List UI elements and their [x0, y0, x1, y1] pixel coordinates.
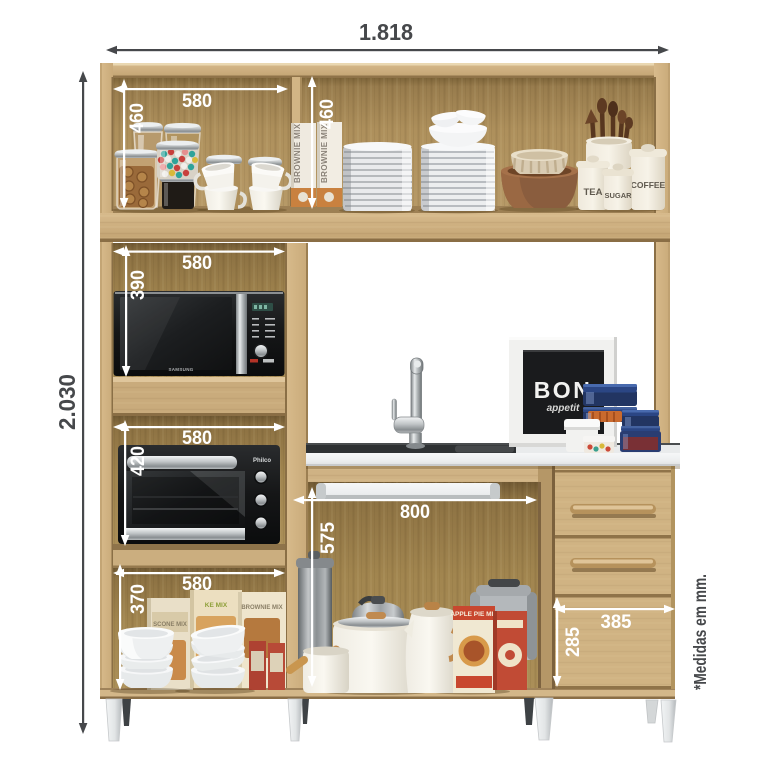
svg-text:390: 390 [128, 270, 149, 300]
svg-text:SAMSUNG: SAMSUNG [168, 367, 193, 372]
svg-text:APPLE PIE MIX: APPLE PIE MIX [450, 611, 498, 618]
svg-text:TEA: TEA [584, 187, 603, 198]
svg-text:460: 460 [127, 103, 148, 133]
svg-text:KE MIX: KE MIX [205, 602, 228, 609]
svg-text:800: 800 [400, 502, 430, 523]
svg-text:420: 420 [128, 446, 149, 476]
svg-text:COFFEE: COFFEE [631, 180, 666, 190]
svg-text:BROWNIE MIX: BROWNIE MIX [241, 605, 282, 611]
svg-text:2.030: 2.030 [54, 374, 80, 430]
svg-text:580: 580 [182, 253, 212, 274]
svg-text:*Medidas em mm.: *Medidas em mm. [690, 574, 710, 690]
svg-text:580: 580 [182, 428, 212, 449]
svg-text:575: 575 [318, 522, 339, 554]
svg-text:SCONE MIX: SCONE MIX [153, 622, 187, 628]
svg-text:appetit: appetit [547, 403, 580, 414]
svg-text:460: 460 [317, 99, 338, 129]
svg-text:SUGAR: SUGAR [604, 191, 632, 200]
svg-text:580: 580 [182, 91, 212, 112]
svg-text:BROWNIE MIX: BROWNIE MIX [293, 123, 302, 183]
svg-text:370: 370 [128, 584, 149, 614]
svg-text:BROWNIE MIX: BROWNIE MIX [320, 123, 329, 183]
svg-text:285: 285 [563, 627, 584, 657]
svg-text:385: 385 [601, 612, 632, 633]
svg-text:1.818: 1.818 [359, 19, 413, 45]
svg-text:Philco: Philco [253, 458, 271, 464]
svg-text:580: 580 [182, 574, 212, 595]
